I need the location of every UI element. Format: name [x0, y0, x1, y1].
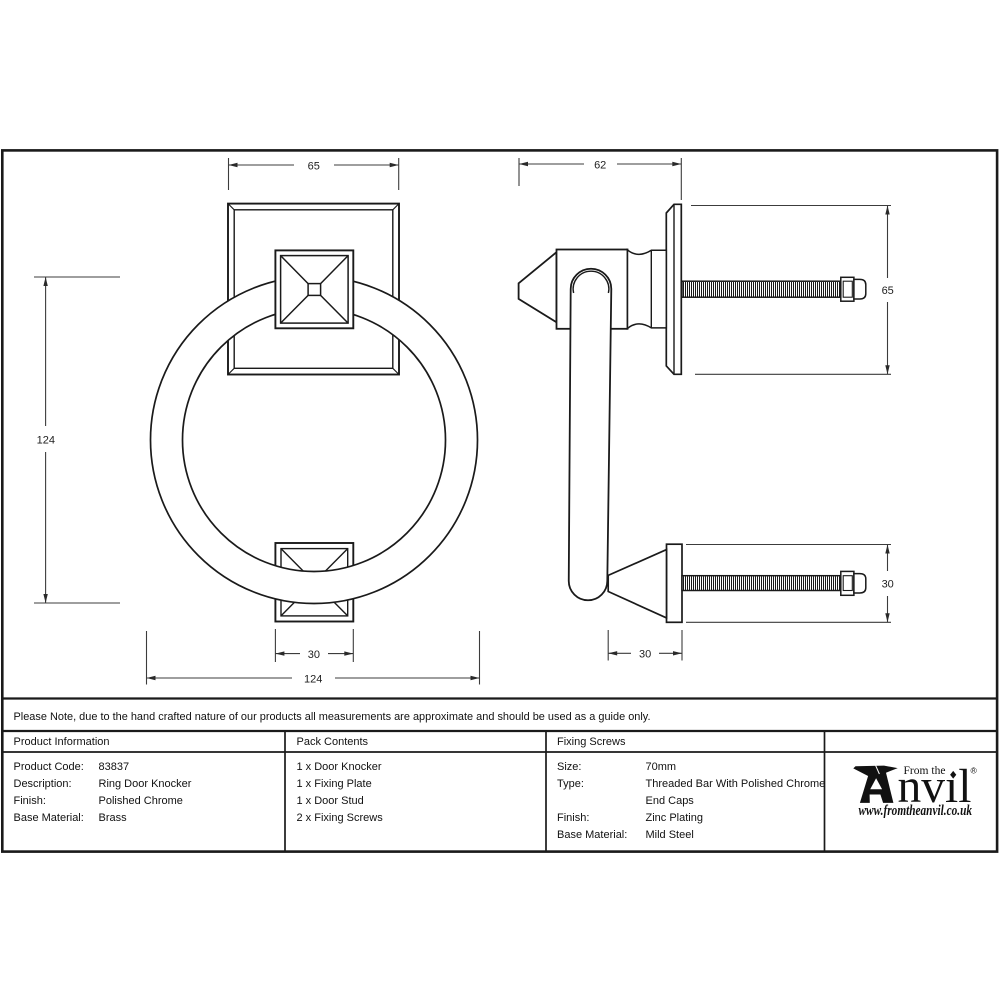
svg-text:www.fromtheanvil.co.uk: www.fromtheanvil.co.uk [859, 803, 973, 819]
svg-text:Fixing Screws: Fixing Screws [557, 736, 626, 748]
svg-text:30: 30 [308, 649, 320, 661]
svg-text:70mm: 70mm [646, 761, 677, 773]
svg-text:®: ® [971, 766, 978, 776]
svg-text:30: 30 [882, 579, 894, 591]
svg-text:Threaded Bar With Polished Chr: Threaded Bar With Polished Chrome [646, 778, 826, 790]
svg-text:1 x Fixing Plate: 1 x Fixing Plate [297, 778, 372, 790]
svg-text:Product Code:: Product Code: [14, 761, 84, 773]
svg-text:83837: 83837 [99, 761, 130, 773]
svg-text:Finish:: Finish: [557, 812, 589, 824]
svg-text:Finish:: Finish: [14, 795, 46, 807]
svg-text:1 x Door Stud: 1 x Door Stud [297, 795, 364, 807]
svg-text:1 x Door Knocker: 1 x Door Knocker [297, 761, 382, 773]
svg-text:Base Material:: Base Material: [14, 812, 84, 824]
svg-text:62: 62 [594, 159, 606, 171]
svg-text:Product Information: Product Information [14, 736, 110, 748]
svg-text:Type:: Type: [557, 778, 584, 790]
svg-text:65: 65 [882, 285, 894, 297]
svg-text:124: 124 [37, 434, 55, 446]
svg-text:30: 30 [639, 649, 651, 661]
svg-text:65: 65 [308, 160, 320, 172]
svg-text:Size:: Size: [557, 761, 581, 773]
svg-text:124: 124 [304, 673, 322, 685]
svg-text:Please Note, due to the hand c: Please Note, due to the hand crafted nat… [14, 711, 651, 723]
svg-text:Base Material:: Base Material: [557, 829, 627, 841]
svg-text:Brass: Brass [99, 812, 128, 824]
svg-text:Zinc Plating: Zinc Plating [646, 812, 703, 824]
svg-text:Ring Door Knocker: Ring Door Knocker [99, 778, 192, 790]
svg-text:Description:: Description: [14, 778, 72, 790]
svg-text:Pack Contents: Pack Contents [297, 736, 369, 748]
svg-text:Mild Steel: Mild Steel [646, 829, 694, 841]
svg-text:Polished Chrome: Polished Chrome [99, 795, 183, 807]
svg-text:End Caps: End Caps [646, 795, 695, 807]
svg-text:2 x Fixing Screws: 2 x Fixing Screws [297, 812, 384, 824]
